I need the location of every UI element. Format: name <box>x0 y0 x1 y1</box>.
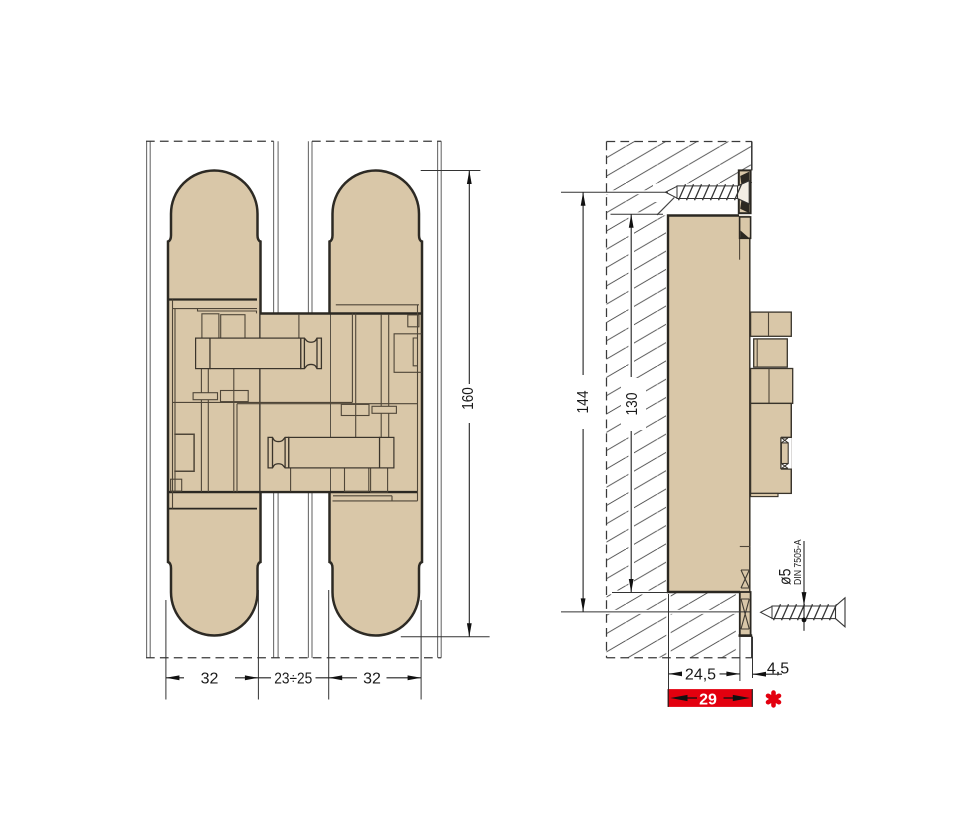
svg-text:144: 144 <box>575 390 592 413</box>
svg-text:24,5: 24,5 <box>685 666 716 683</box>
svg-text:DIN 7505-A: DIN 7505-A <box>792 540 804 586</box>
svg-text:29: 29 <box>699 691 717 708</box>
svg-text:32: 32 <box>201 671 219 688</box>
svg-text:130: 130 <box>624 392 641 415</box>
svg-text:23÷25: 23÷25 <box>274 671 312 688</box>
svg-text:160: 160 <box>460 387 477 410</box>
svg-text:4,5: 4,5 <box>767 661 789 678</box>
svg-text:32: 32 <box>363 671 381 688</box>
